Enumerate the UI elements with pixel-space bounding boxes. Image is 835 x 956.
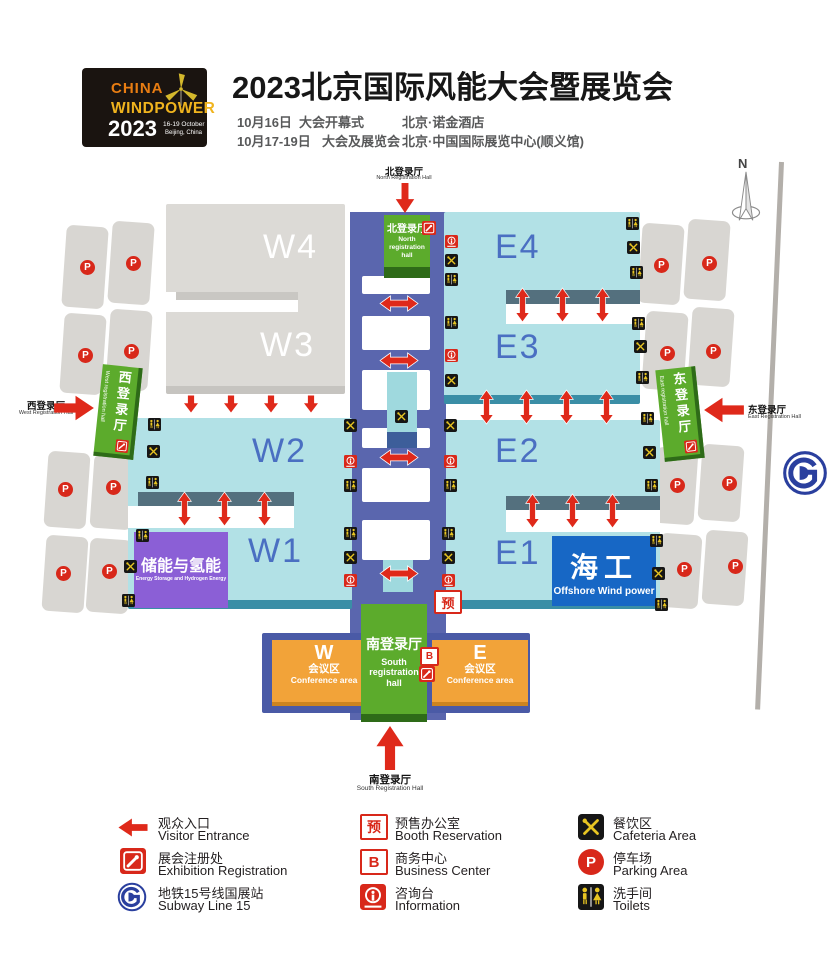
event-logo: CHINA WINDPOWER 2023 16-19 October Beiji… xyxy=(82,68,207,147)
hall-label-w3: W3 xyxy=(260,326,315,365)
logo-city: Beijing, China xyxy=(165,130,202,136)
toilets-icon xyxy=(632,317,645,330)
toilets-icon xyxy=(636,371,649,384)
hall-label-w1: W1 xyxy=(248,532,303,571)
cafeteria-icon xyxy=(344,551,357,564)
east-reg-cn: 东登录厅 xyxy=(669,371,695,437)
hall-label-e4: E4 xyxy=(495,228,541,267)
venue-map-poster: CHINA WINDPOWER 2023 16-19 October Beiji… xyxy=(0,0,835,956)
information-icon xyxy=(344,455,357,468)
corridor-gap xyxy=(362,468,430,502)
subway-logo-icon xyxy=(782,450,828,496)
east-reg-en: East registration hall xyxy=(658,375,669,425)
north-entrance-arrow-icon xyxy=(394,183,416,213)
double-arrow-icon xyxy=(514,284,531,326)
schedule-event-2: 大会及展览会 xyxy=(322,131,400,150)
legend-subway-en: Subway Line 15 xyxy=(158,898,251,913)
schedule-date-2: 10月17-19日 xyxy=(237,131,311,150)
toilets-icon xyxy=(444,479,457,492)
west-reg-en: West registration hall xyxy=(99,370,110,422)
hall-label-w4: W4 xyxy=(263,228,318,267)
north-entrance-label-en: North Registration Hall xyxy=(352,175,456,181)
toilets-icon xyxy=(641,412,654,425)
cafeteria-icon xyxy=(445,374,458,387)
parking-marker: P xyxy=(124,344,139,359)
information-icon xyxy=(445,349,458,362)
toilets-icon xyxy=(344,479,357,492)
toilets-icon xyxy=(445,316,458,329)
double-arrow-icon xyxy=(594,284,611,326)
cafeteria-icon xyxy=(444,419,457,432)
double-arrow-icon xyxy=(518,386,535,428)
legend-parking-en: Parking Area xyxy=(613,863,687,878)
toilets-icon xyxy=(442,527,455,540)
south-entrance-label-en: South Registration Hall xyxy=(336,785,444,792)
zone-offshore-cn: 海工 xyxy=(552,546,656,586)
conference-e-cn: 会议区 xyxy=(432,664,528,675)
parking-marker: P xyxy=(102,564,117,579)
toilets-icon xyxy=(148,418,161,431)
down-arrow-icon xyxy=(304,394,318,414)
parking-marker: P xyxy=(56,566,71,581)
parking-marker: P xyxy=(80,260,95,275)
legend-information-en: Information xyxy=(395,898,460,913)
double-arrow-icon xyxy=(558,386,575,428)
parking-marker: P xyxy=(706,344,721,359)
toilets-icon xyxy=(630,266,643,279)
cafeteria-icon xyxy=(395,410,408,423)
double-arrow-icon xyxy=(216,488,233,530)
toilets-icon xyxy=(146,476,159,489)
schedule-venue-2: 北京·中国国际展览中心(顺义馆) xyxy=(402,131,584,150)
corridor-gap xyxy=(362,520,430,560)
south-entrance-arrow-icon xyxy=(372,726,408,770)
south-reg-cn: 南登录厅 xyxy=(361,634,427,654)
information-icon xyxy=(442,574,455,587)
cafeteria-icon xyxy=(634,340,647,353)
cafeteria-icon xyxy=(643,446,656,459)
north-reg-base xyxy=(384,267,430,278)
cafeteria-icon xyxy=(344,419,357,432)
logo-year: 2023 xyxy=(108,116,157,142)
north-reg-en: North registration hall xyxy=(385,236,429,259)
parking-marker: P xyxy=(702,256,717,271)
visitor-entrance-arrow-icon xyxy=(118,818,148,837)
toilets-icon xyxy=(578,884,604,910)
cafeteria-icon xyxy=(147,445,160,458)
schedule-date-1: 10月16日 xyxy=(237,112,292,131)
toilets-icon xyxy=(122,594,135,607)
double-arrow-icon xyxy=(524,490,541,532)
parking-marker: P xyxy=(58,482,73,497)
logo-dates: 16-19 October xyxy=(163,121,205,128)
east-entrance-label-en: East Registration Hall xyxy=(748,414,801,420)
page-title: 2023北京国际风能大会暨展览会 xyxy=(232,62,673,107)
parking-marker: P xyxy=(670,478,685,493)
legend-toilets-en: Toilets xyxy=(613,898,650,913)
registration-icon xyxy=(422,221,436,235)
parking-marker: P xyxy=(578,849,604,875)
registration-icon xyxy=(419,666,435,682)
toilets-icon xyxy=(645,479,658,492)
business-center-badge: B xyxy=(420,647,439,666)
parking-marker: P xyxy=(728,559,743,574)
legend-exhibition-registration-en: Exhibition Registration xyxy=(158,863,287,878)
south-reg-base xyxy=(361,714,427,722)
information-icon xyxy=(344,574,357,587)
cafeteria-icon xyxy=(627,241,640,254)
parking-marker: P xyxy=(126,256,141,271)
toilets-icon xyxy=(136,529,149,542)
double-arrow-icon xyxy=(598,386,615,428)
parking-marker: P xyxy=(654,258,669,273)
double-arrow-icon xyxy=(378,351,420,370)
legend-booth-en: Booth Reservation xyxy=(395,828,502,843)
parking-marker: P xyxy=(660,346,675,361)
subway-logo-icon xyxy=(117,882,147,912)
south-registration-hall: 南登录厅 South registration hall xyxy=(361,604,427,714)
cafeteria-icon xyxy=(578,814,604,840)
conference-area-east: E 会议区 Conference area xyxy=(432,640,528,706)
zone-energy-storage-en: Energy Storage and Hydrogen Energy xyxy=(134,576,228,582)
double-arrow-icon xyxy=(176,488,193,530)
cafeteria-icon xyxy=(442,551,455,564)
conference-e-en: Conference area xyxy=(432,675,528,685)
east-entrance-arrow-icon xyxy=(704,397,744,423)
double-arrow-icon xyxy=(604,490,621,532)
toilets-icon xyxy=(344,527,357,540)
business-center-badge: B xyxy=(360,849,388,875)
double-arrow-icon xyxy=(378,448,420,467)
south-reg-en: South registration hall xyxy=(365,657,423,688)
legend-business-en: Business Center xyxy=(395,863,490,878)
double-arrow-icon xyxy=(478,386,495,428)
toilets-icon xyxy=(626,217,639,230)
information-icon xyxy=(444,455,457,468)
west-entrance-arrow-icon xyxy=(54,395,94,421)
hall-label-e3: E3 xyxy=(495,328,541,367)
hall-label-e1: E1 xyxy=(495,534,541,573)
double-arrow-icon xyxy=(378,294,420,313)
corridor-gap xyxy=(362,276,430,294)
cafeteria-icon xyxy=(124,560,137,573)
hall-label-w2: W2 xyxy=(252,432,307,471)
zone-offshore: 海工 Offshore Wind power xyxy=(552,536,656,606)
double-arrow-icon xyxy=(378,564,420,583)
registration-icon xyxy=(684,439,698,453)
compass-north-label: N xyxy=(738,156,747,171)
schedule-event-1: 大会开幕式 xyxy=(299,112,364,131)
zone-energy-storage-cn: 储能与氢能 xyxy=(134,552,228,576)
cafeteria-icon xyxy=(652,567,665,580)
corridor-gap xyxy=(362,316,430,350)
information-icon xyxy=(445,235,458,248)
double-arrow-icon xyxy=(554,284,571,326)
cafeteria-icon xyxy=(445,254,458,267)
booth-reservation-badge: 预 xyxy=(360,814,388,840)
west-reg-cn: 西登录厅 xyxy=(109,369,135,435)
double-arrow-icon xyxy=(256,488,273,530)
toilets-icon xyxy=(445,273,458,286)
zone-offshore-en: Offshore Wind power xyxy=(552,586,656,597)
legend-visitor-entrance-en: Visitor Entrance xyxy=(158,828,250,843)
hall-notch-shadow xyxy=(176,292,298,300)
compass-icon xyxy=(728,170,764,228)
parking-marker: P xyxy=(722,476,737,491)
conference-e-letter: E xyxy=(432,642,528,664)
zone-energy-storage: 储能与氢能 Energy Storage and Hydrogen Energy xyxy=(134,532,228,608)
legend-cafeteria-en: Cafeteria Area xyxy=(613,828,696,843)
corridor-kiosk-base xyxy=(387,432,417,448)
parking-marker: P xyxy=(106,480,121,495)
subway-line xyxy=(755,162,784,710)
booth-reservation-badge: 预 xyxy=(434,590,462,614)
registration-icon xyxy=(120,848,146,874)
toilets-icon xyxy=(650,534,663,547)
toilets-icon xyxy=(655,598,668,611)
hall-label-e2: E2 xyxy=(495,432,541,471)
down-arrow-icon xyxy=(224,394,238,414)
information-icon xyxy=(360,884,386,910)
corridor-kiosk xyxy=(387,372,417,432)
schedule-venue-1: 北京·诺金酒店 xyxy=(402,112,484,131)
double-arrow-icon xyxy=(564,490,581,532)
down-arrow-icon xyxy=(184,394,198,414)
logo-brand-line1: CHINA xyxy=(111,80,164,97)
down-arrow-icon xyxy=(264,394,278,414)
parking-marker: P xyxy=(677,562,692,577)
registration-icon xyxy=(115,439,129,453)
parking-marker: P xyxy=(78,348,93,363)
